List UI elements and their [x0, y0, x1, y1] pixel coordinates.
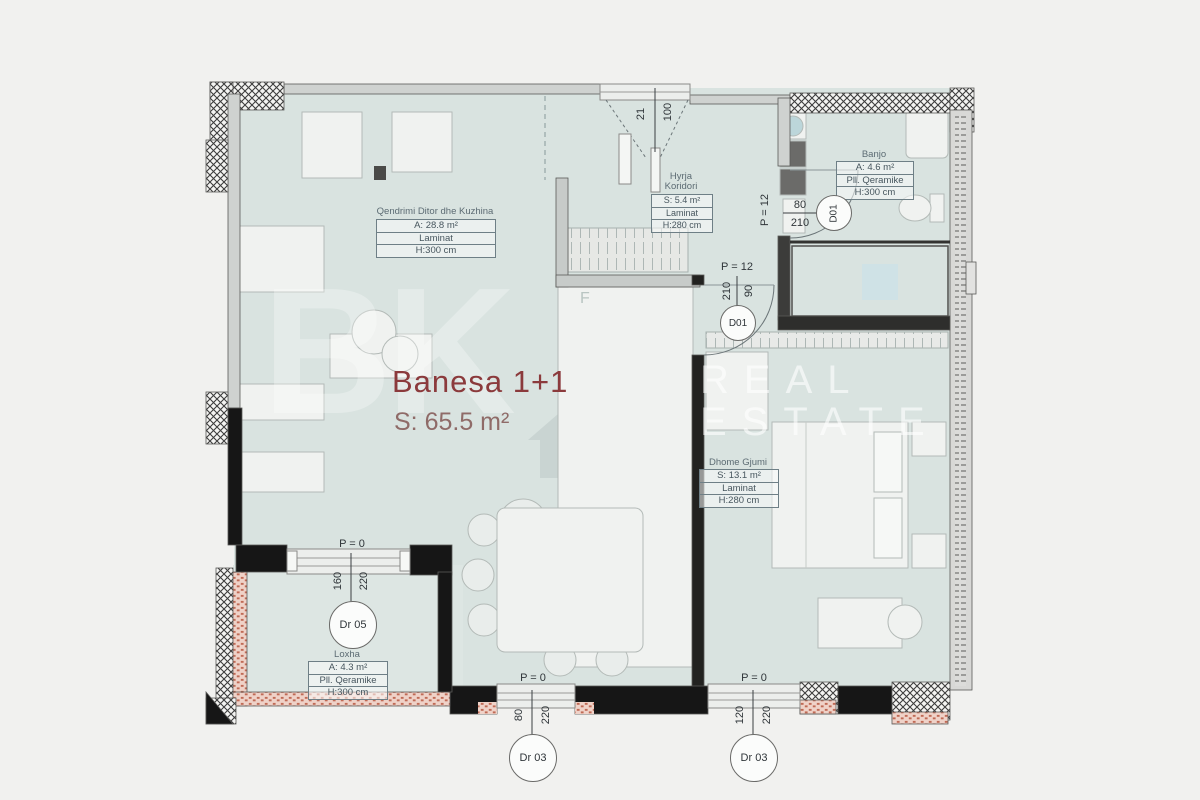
room-box-kitchen: A: 28.8 m² Laminat H:300 cm: [376, 219, 496, 258]
room-area: A: 4.3 m²: [309, 662, 387, 674]
room-area: A: 28.8 m²: [377, 220, 495, 232]
room-area: A: 4.6 m²: [837, 162, 913, 174]
room-floor: Pll. Qeramike: [837, 174, 913, 187]
balcony-door-height: 220: [357, 559, 371, 603]
balcony-door-width: 160: [331, 559, 345, 603]
bath-door-height: 210: [778, 216, 822, 230]
entrance-dim-width: 100: [661, 90, 675, 134]
room-floor: Laminat: [700, 482, 778, 495]
terrace2-door-p: P = 0: [732, 671, 776, 685]
room-name-loggia: Loxha: [308, 650, 386, 660]
tall-unit-label: F: [580, 290, 590, 308]
watermark-real: REAL: [700, 358, 865, 403]
room-height: H:300 cm: [837, 186, 913, 199]
room-box-bath: A: 4.6 m² Pll. Qeramike H:300 cm: [836, 161, 914, 200]
room-box-bedroom: S: 13.1 m² Laminat H:280 cm: [699, 469, 779, 508]
plan-area: S: 65.5 m²: [394, 408, 509, 437]
room-height: H:280 cm: [652, 219, 712, 232]
bath-door-tag-label: D01: [828, 204, 839, 222]
room-name-bedroom: Dhome Gjumi: [699, 458, 777, 468]
room-name-kitchen: Qendrimi Ditor dhe Kuzhina: [370, 207, 500, 217]
bedroom-door-tag: D01: [720, 305, 756, 341]
terrace2-door-tag: Dr 03: [730, 734, 778, 782]
room-height: H:280 cm: [700, 494, 778, 507]
floorplan-canvas: [0, 0, 1200, 800]
terrace1-door-width: 80: [512, 693, 526, 737]
terrace2-door-width: 120: [733, 693, 747, 737]
watermark-estate: ESTATE: [700, 400, 940, 445]
terrace1-door-tag: Dr 03: [509, 734, 557, 782]
terrace2-door-height: 220: [760, 693, 774, 737]
room-area: S: 5.4 m²: [652, 195, 712, 207]
room-height: H:300 cm: [309, 686, 387, 699]
balcony-door-tag: Dr 05: [329, 601, 377, 649]
room-floor: Pll. Qeramike: [309, 674, 387, 687]
room-area: S: 13.1 m²: [700, 470, 778, 482]
bath-door-tag: D01: [816, 195, 852, 231]
terrace1-door-p: P = 0: [511, 671, 555, 685]
terrace1-door-height: 220: [539, 693, 553, 737]
room-name-bath: Banjo: [836, 150, 912, 160]
room-height: H:300 cm: [377, 244, 495, 257]
bath-door-p: P = 12: [758, 188, 772, 232]
floor-plan: REAL ESTATE BK Banesa 1+1 S: 65.5 m² Qen…: [0, 0, 1200, 800]
room-floor: Laminat: [377, 232, 495, 245]
plan-title: Banesa 1+1: [392, 364, 568, 400]
balcony-door-p: P = 0: [330, 537, 374, 551]
room-name-hall-2: Koridori: [650, 182, 712, 192]
room-box-loggia: A: 4.3 m² Pll. Qeramike H:300 cm: [308, 661, 388, 700]
room-floor: Laminat: [652, 207, 712, 220]
room-box-hall: S: 5.4 m² Laminat H:280 cm: [651, 194, 713, 233]
entrance-dim-height: 21: [634, 92, 648, 136]
